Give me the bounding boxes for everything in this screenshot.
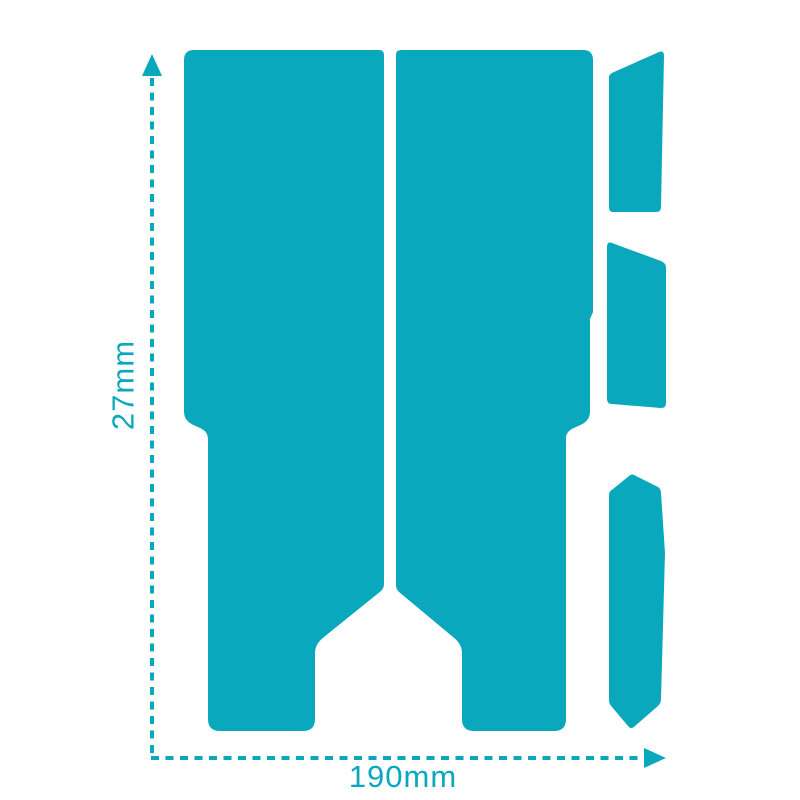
right-arrow-icon <box>644 748 666 768</box>
width-dimension: 190mm <box>151 748 666 794</box>
height-dimension-label: 27mm <box>106 340 141 430</box>
top-right-strip-shape <box>609 52 664 213</box>
up-arrow-icon <box>142 54 162 76</box>
left-panel-shape <box>184 50 384 731</box>
diagram-canvas: 27mm 190mm <box>0 0 800 800</box>
width-dimension-label: 190mm <box>349 759 457 794</box>
middle-right-strip-shape <box>607 243 666 409</box>
height-dimension: 27mm <box>106 54 163 757</box>
right-panel-shape <box>396 50 593 731</box>
dimension-diagram: 27mm 190mm <box>0 0 800 800</box>
bottom-right-strip-shape <box>609 475 665 729</box>
sticker-pieces <box>184 50 666 731</box>
